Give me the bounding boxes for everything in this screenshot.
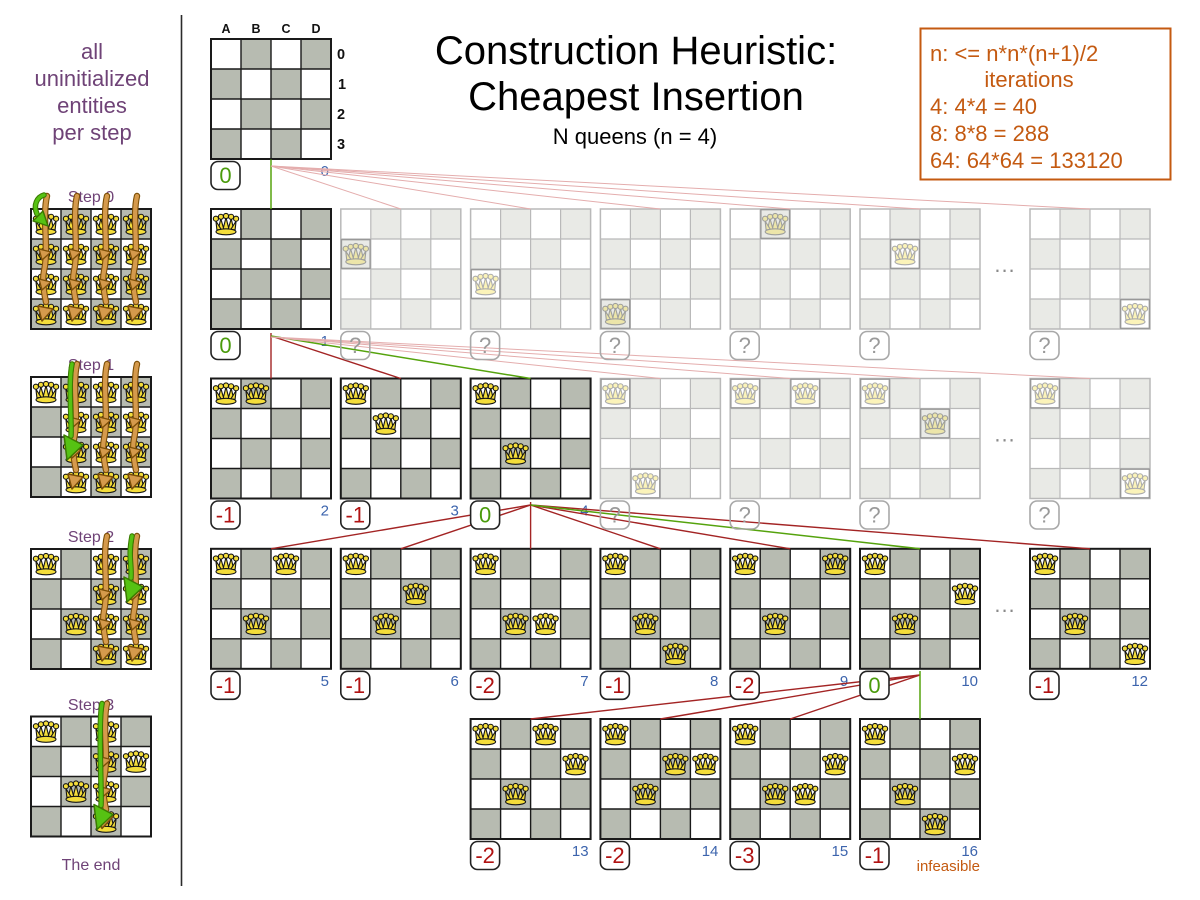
svg-text:-1: -1 bbox=[346, 503, 366, 528]
svg-text:5: 5 bbox=[321, 673, 329, 690]
svg-text:-1: -1 bbox=[216, 503, 236, 528]
svg-text:-1: -1 bbox=[1035, 673, 1055, 698]
svg-text:...: ... bbox=[994, 252, 1015, 277]
svg-text:12: 12 bbox=[1131, 673, 1148, 690]
svg-text:-2: -2 bbox=[605, 843, 625, 868]
svg-text:Cheapest Insertion: Cheapest Insertion bbox=[468, 75, 804, 119]
svg-text:iterations: iterations bbox=[984, 67, 1073, 92]
svg-text:0: 0 bbox=[219, 333, 231, 358]
svg-text:-1: -1 bbox=[865, 843, 885, 868]
svg-text:2: 2 bbox=[321, 503, 329, 520]
svg-text:...: ... bbox=[994, 592, 1015, 617]
svg-text:-1: -1 bbox=[605, 673, 625, 698]
svg-text:2: 2 bbox=[337, 107, 345, 123]
svg-text:?: ? bbox=[609, 503, 621, 528]
svg-text:-2: -2 bbox=[475, 843, 495, 868]
svg-text:infeasible: infeasible bbox=[917, 858, 980, 875]
svg-text:0: 0 bbox=[219, 163, 231, 188]
svg-text:15: 15 bbox=[832, 843, 849, 860]
svg-text:64: 64*64 = 133120: 64: 64*64 = 133120 bbox=[930, 148, 1123, 173]
svg-text:?: ? bbox=[1038, 333, 1050, 358]
svg-text:1: 1 bbox=[338, 77, 346, 93]
svg-text:0: 0 bbox=[479, 503, 491, 528]
svg-text:4: 4*4 = 40: 4: 4*4 = 40 bbox=[930, 94, 1037, 119]
svg-text:-1: -1 bbox=[216, 673, 236, 698]
svg-text:N queens (n = 4): N queens (n = 4) bbox=[553, 124, 717, 149]
svg-text:-3: -3 bbox=[735, 843, 755, 868]
svg-text:?: ? bbox=[609, 333, 621, 358]
svg-text:8: 8*8 = 288: 8: 8*8 = 288 bbox=[930, 121, 1049, 146]
svg-text:all: all bbox=[81, 39, 103, 64]
svg-text:13: 13 bbox=[572, 843, 589, 860]
svg-text:-1: -1 bbox=[346, 673, 366, 698]
svg-text:The end: The end bbox=[62, 857, 121, 874]
svg-text:A: A bbox=[221, 22, 230, 36]
svg-text:10: 10 bbox=[961, 673, 978, 690]
svg-text:3: 3 bbox=[337, 137, 345, 153]
svg-text:?: ? bbox=[868, 333, 880, 358]
svg-text:6: 6 bbox=[450, 673, 458, 690]
svg-text:Construction Heuristic:: Construction Heuristic: bbox=[435, 29, 837, 73]
svg-text:C: C bbox=[281, 22, 290, 36]
svg-text:?: ? bbox=[349, 333, 361, 358]
svg-text:?: ? bbox=[739, 333, 751, 358]
svg-text:?: ? bbox=[1038, 503, 1050, 528]
svg-text:...: ... bbox=[994, 422, 1015, 447]
svg-text:14: 14 bbox=[702, 843, 719, 860]
svg-text:7: 7 bbox=[580, 673, 588, 690]
svg-text:0: 0 bbox=[868, 673, 880, 698]
svg-text:D: D bbox=[311, 22, 320, 36]
svg-text:entities: entities bbox=[57, 93, 127, 118]
svg-text:-2: -2 bbox=[475, 673, 495, 698]
svg-text:B: B bbox=[251, 22, 260, 36]
svg-text:8: 8 bbox=[710, 673, 718, 690]
svg-text:?: ? bbox=[479, 333, 491, 358]
svg-text:per step: per step bbox=[52, 120, 132, 145]
svg-text:0: 0 bbox=[337, 47, 345, 63]
svg-text:?: ? bbox=[868, 503, 880, 528]
svg-text:-2: -2 bbox=[735, 673, 755, 698]
svg-text:n: <= n*n*(n+1)/2: n: <= n*n*(n+1)/2 bbox=[930, 41, 1098, 66]
svg-text:?: ? bbox=[739, 503, 751, 528]
svg-text:uninitialized: uninitialized bbox=[35, 66, 150, 91]
